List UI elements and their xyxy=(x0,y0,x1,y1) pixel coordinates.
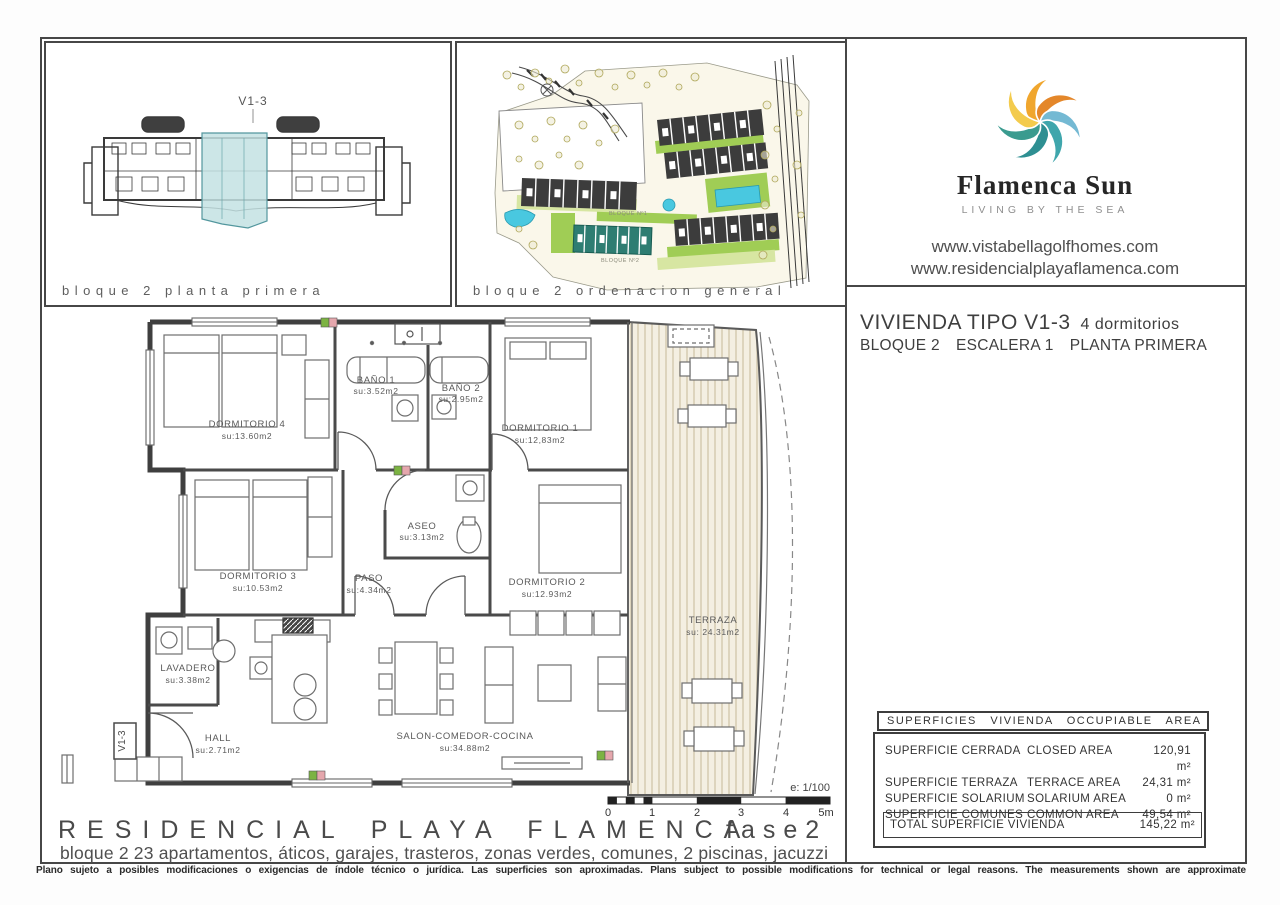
site-plan-bloque2-label: BLOQUE Nº2 xyxy=(601,257,640,264)
room-label: DORMITORIO 1 xyxy=(502,423,579,434)
unit-info: VIVIENDA TIPO V1-34 dormitorios BLOQUE 2… xyxy=(860,311,1240,355)
table-row: SUPERFICIE TERRAZA TERRACE AREA 24,31 m² xyxy=(885,775,1191,791)
block-plan-unit-label: V1-3 xyxy=(238,94,267,108)
areas-table-header: SUPERFICIES VIVIENDA OCCUPIABLE AREA xyxy=(877,711,1209,731)
north-symbol-icon xyxy=(541,84,553,96)
brand-websites: www.vistabellagolfhomes.com www.residenc… xyxy=(847,236,1243,280)
room-label: TERRAZA xyxy=(689,615,738,626)
room-area: su:3.38m2 xyxy=(165,675,210,685)
flamenca-sun-logo-icon xyxy=(990,72,1090,172)
row-label-en: TERRACE AREA xyxy=(1027,775,1139,791)
scale-note: e: 1/100 xyxy=(790,782,830,794)
project-phase: fase2 xyxy=(726,816,827,845)
brand-name: Flamenca Sun xyxy=(847,170,1243,201)
room-label: SALON-COMEDOR-COCINA xyxy=(396,731,533,742)
areas-table: SUPERFICIE CERRADA CLOSED AREA 120,91 m²… xyxy=(873,732,1206,848)
block-plan-caption: bloque 2 planta primera xyxy=(62,283,325,298)
room-area: su:34.88m2 xyxy=(440,743,490,753)
site-plan-drawing: BLOQUE Nº1 BLOQUE Nº2 xyxy=(457,43,841,301)
room-area: su:2.95m2 xyxy=(438,394,483,404)
room-area: su:3.52m2 xyxy=(353,386,398,396)
project-description: bloque 2 23 apartamentos, áticos, garaje… xyxy=(60,843,828,864)
floor-plan-drawing: V1-3 DORMITORIO 4 su:13.60m2 BAÑO 1 su:3… xyxy=(42,305,845,820)
unit-tag-label: V1-3 xyxy=(117,730,128,752)
total-label: TOTAL SUPERFICIE VIVIENDA xyxy=(890,819,1065,831)
unit-bedrooms: 4 dormitorios xyxy=(1081,316,1180,333)
room-label: DORMITORIO 3 xyxy=(220,571,297,582)
unit-tag-plate: V1-3 xyxy=(114,723,136,759)
row-label-es: SUPERFICIE SOLARIUM xyxy=(885,791,1027,807)
total-value: 145,22 m² xyxy=(1065,819,1195,831)
table-row: SUPERFICIE SOLARIUM SOLARIUM AREA 0 m² xyxy=(885,791,1191,807)
bloque-2-building xyxy=(573,225,652,255)
project-title: RESIDENCIAL PLAYA FLAMENCA xyxy=(58,816,751,845)
unit-floor: PLANTA PRIMERA xyxy=(1070,337,1207,354)
room-area: su:10.53m2 xyxy=(233,583,283,593)
site-plan-bloque1-label: BLOQUE Nº1 xyxy=(609,210,648,217)
room-area: su:13.60m2 xyxy=(222,431,272,441)
site-plan-caption: bloque 2 ordenacion general xyxy=(473,283,786,298)
room-label: BAÑO 1 xyxy=(357,375,395,386)
highlighted-unit xyxy=(202,133,267,228)
right-column-rule xyxy=(847,285,1245,287)
room-area: su:12,83m2 xyxy=(515,435,565,445)
block-plan-panel: V1-3 bloque 2 planta primera xyxy=(44,41,452,307)
room-area: su:4.34m2 xyxy=(346,585,391,595)
row-label-en: CLOSED AREA xyxy=(1027,743,1139,775)
brand-tagline: LIVING BY THE SEA xyxy=(847,204,1243,216)
room-label: BAÑO 2 xyxy=(442,383,480,394)
room-area: su: 24.31m2 xyxy=(686,627,739,637)
unit-block: BLOQUE 2 xyxy=(860,337,940,354)
website-link-2[interactable]: www.residencialplayaflamenca.com xyxy=(847,258,1243,280)
unit-type-title: VIVIENDA TIPO V1-3 xyxy=(860,311,1071,334)
terrace-area xyxy=(628,322,762,795)
room-label: DORMITORIO 2 xyxy=(509,577,586,588)
room-label: LAVADERO xyxy=(160,663,215,674)
row-label-en: SOLARIUM AREA xyxy=(1027,791,1139,807)
row-value: 24,31 m² xyxy=(1139,775,1191,791)
room-label: DORMITORIO 4 xyxy=(209,419,286,430)
terrace-boundary-dashed xyxy=(769,337,793,792)
room-label: PASO xyxy=(355,573,383,584)
row-value: 120,91 m² xyxy=(1139,743,1191,775)
room-label: ASEO xyxy=(408,521,437,532)
website-link-1[interactable]: www.vistabellagolfhomes.com xyxy=(847,236,1243,258)
unit-staircase: ESCALERA 1 xyxy=(956,337,1054,354)
room-area: su:2.71m2 xyxy=(195,745,240,755)
room-label: HALL xyxy=(205,733,231,744)
site-plan-panel: BLOQUE Nº1 BLOQUE Nº2 bloque 2 ordenacio… xyxy=(455,41,847,307)
block-plan-drawing: V1-3 xyxy=(46,43,446,301)
disclaimer-text: Plano sujeto a posibles modificaciones o… xyxy=(36,865,1246,876)
room-area: su:12.93m2 xyxy=(522,589,572,599)
room-area: su:3.13m2 xyxy=(399,532,444,542)
table-row: SUPERFICIE CERRADA CLOSED AREA 120,91 m² xyxy=(885,743,1191,775)
row-label-es: SUPERFICIE CERRADA xyxy=(885,743,1027,775)
row-label-es: SUPERFICIE TERRAZA xyxy=(885,775,1027,791)
row-value: 0 m² xyxy=(1139,791,1191,807)
table-total-row: TOTAL SUPERFICIE VIVIENDA 145,22 m² xyxy=(883,812,1202,838)
